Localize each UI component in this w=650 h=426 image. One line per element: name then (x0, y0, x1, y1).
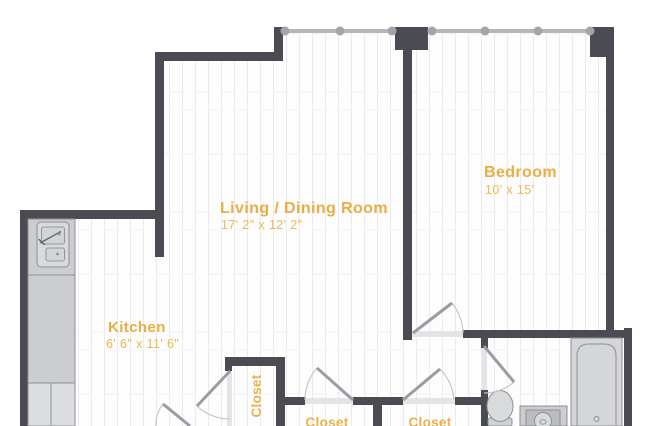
mullion-dot (388, 27, 397, 36)
floor-plan: Living / Dining Room 17' 2" x 12' 2" Bed… (0, 0, 650, 426)
closet-left-label: Closet (305, 415, 348, 426)
toilet-icon (487, 391, 513, 426)
mullion-dot (336, 27, 345, 36)
floor-plan-canvas: Living / Dining Room 17' 2" x 12' 2" Bed… (0, 0, 650, 426)
bedroom-label: Bedroom (484, 164, 557, 181)
bedroom-dims: 10' x 15' (485, 183, 534, 197)
mullion-dot (481, 27, 490, 36)
kitchen-counter (28, 219, 75, 426)
mullion-dot (281, 27, 290, 36)
kitchen-dims: 6' 6" x 11' 6" (106, 337, 179, 351)
living-room-dims: 17' 2" x 12' 2" (221, 218, 303, 232)
mullion-dot (586, 27, 595, 36)
hall-closet-label: Closet (249, 374, 264, 417)
bathtub-icon (571, 338, 622, 426)
bedroom-window (428, 29, 590, 33)
closet-right-label: Closet (408, 415, 451, 426)
living-room-label: Living / Dining Room (220, 200, 388, 217)
kitchen-sink-icon (37, 222, 69, 267)
floor-texture (28, 33, 624, 426)
mullion-dot (428, 27, 437, 36)
vanity-sink-icon (520, 406, 567, 426)
mullion-dot (534, 27, 543, 36)
kitchen-label: Kitchen (108, 319, 166, 336)
